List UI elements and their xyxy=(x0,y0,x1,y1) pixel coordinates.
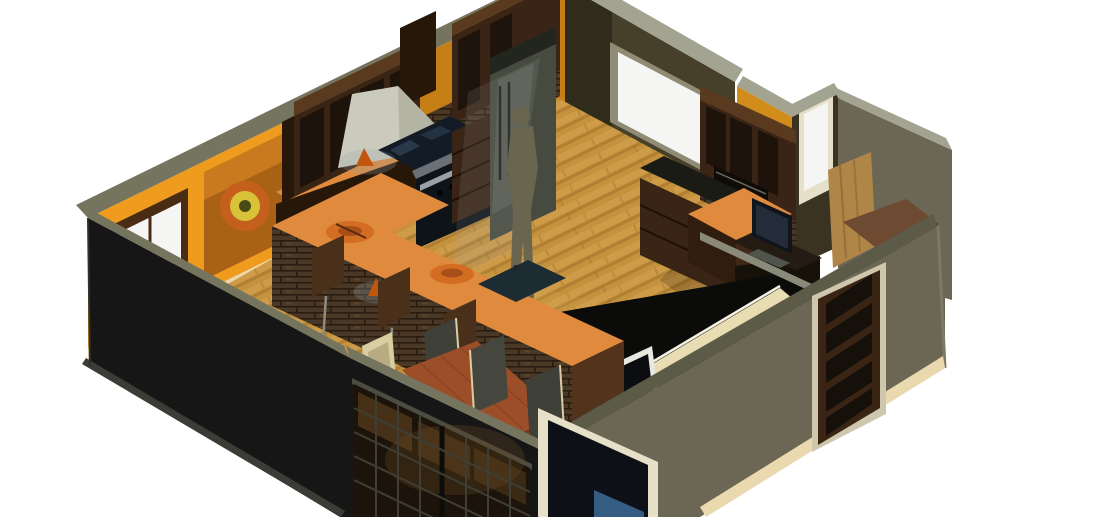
grid-glow-center xyxy=(385,425,525,495)
render-viewport[interactable]: Isometric cutaway 3D rendering of a cond… xyxy=(0,0,1110,517)
decor-plate-inner xyxy=(441,269,463,278)
alcove-window-glass xyxy=(804,102,828,191)
figure-head xyxy=(512,107,530,125)
faucet xyxy=(513,265,519,271)
cabinet-door-glass xyxy=(300,107,324,188)
cabinet-door-glass xyxy=(758,130,778,196)
cabinet-door-glass xyxy=(706,106,726,172)
flower-center xyxy=(239,200,251,212)
isometric-room-svg xyxy=(0,0,1110,517)
cabinet-door-glass xyxy=(730,117,752,184)
range-knob xyxy=(437,190,443,196)
cabinet-side xyxy=(282,116,294,203)
